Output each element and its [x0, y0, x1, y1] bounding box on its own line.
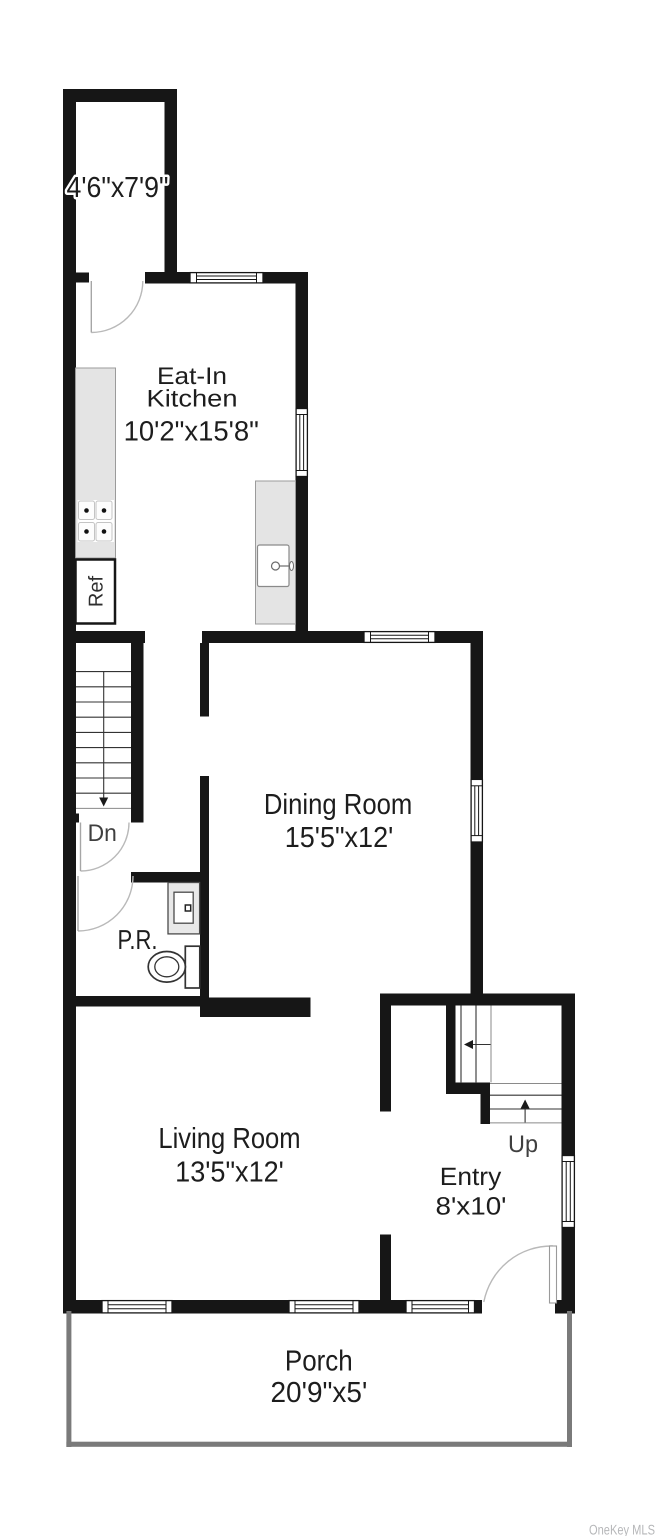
svg-text:OneKey MLS: OneKey MLS	[589, 1521, 655, 1536]
svg-text:4'6"x7'9": 4'6"x7'9"	[67, 172, 169, 204]
svg-text:15'5"x12': 15'5"x12'	[285, 822, 394, 854]
svg-text:Up: Up	[508, 1131, 538, 1158]
svg-text:Kitchen: Kitchen	[147, 386, 238, 413]
svg-text:13'5"x12': 13'5"x12'	[175, 1156, 284, 1188]
svg-text:Dining Room: Dining Room	[264, 789, 412, 821]
svg-text:20'9"x5': 20'9"x5'	[271, 1377, 368, 1409]
svg-text:P.R.: P.R.	[118, 924, 158, 955]
svg-text:10'2"x15'8": 10'2"x15'8"	[124, 416, 259, 447]
svg-text:8'x10': 8'x10'	[436, 1192, 507, 1220]
svg-text:Dn: Dn	[88, 820, 117, 847]
svg-text:Living Room: Living Room	[158, 1123, 300, 1155]
svg-text:Entry: Entry	[440, 1163, 502, 1191]
svg-text:Porch: Porch	[285, 1345, 353, 1377]
svg-text:Ref: Ref	[86, 575, 108, 607]
